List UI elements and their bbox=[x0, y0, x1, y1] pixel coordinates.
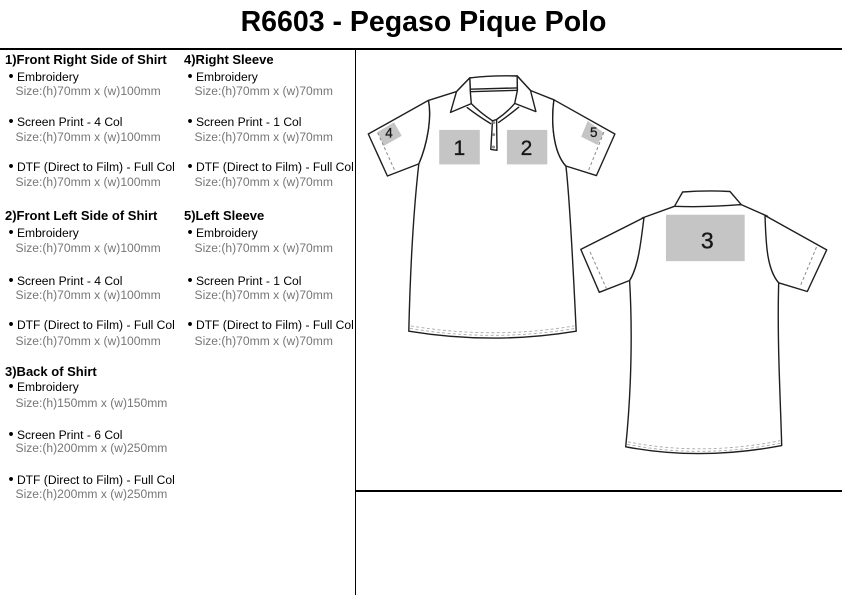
svg-text:5: 5 bbox=[590, 125, 598, 140]
svg-text:1: 1 bbox=[453, 137, 465, 160]
svg-text:4: 4 bbox=[385, 126, 393, 141]
svg-text:3: 3 bbox=[701, 227, 714, 253]
svg-text:2: 2 bbox=[521, 137, 533, 160]
